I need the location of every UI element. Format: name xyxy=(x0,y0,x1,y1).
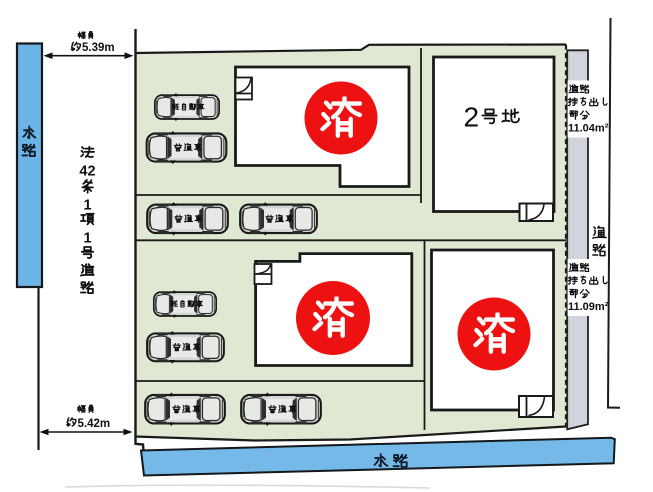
svg-text:5.39m: 5.39m xyxy=(82,42,115,54)
svg-text:1: 1 xyxy=(83,230,91,246)
svg-text:11.09m²: 11.09m² xyxy=(568,301,609,313)
svg-text:5.42m: 5.42m xyxy=(78,418,111,430)
svg-text:1: 1 xyxy=(83,197,91,213)
svg-text:42: 42 xyxy=(79,163,95,179)
svg-text:2: 2 xyxy=(464,102,480,133)
svg-text:11.04m²: 11.04m² xyxy=(568,123,609,135)
